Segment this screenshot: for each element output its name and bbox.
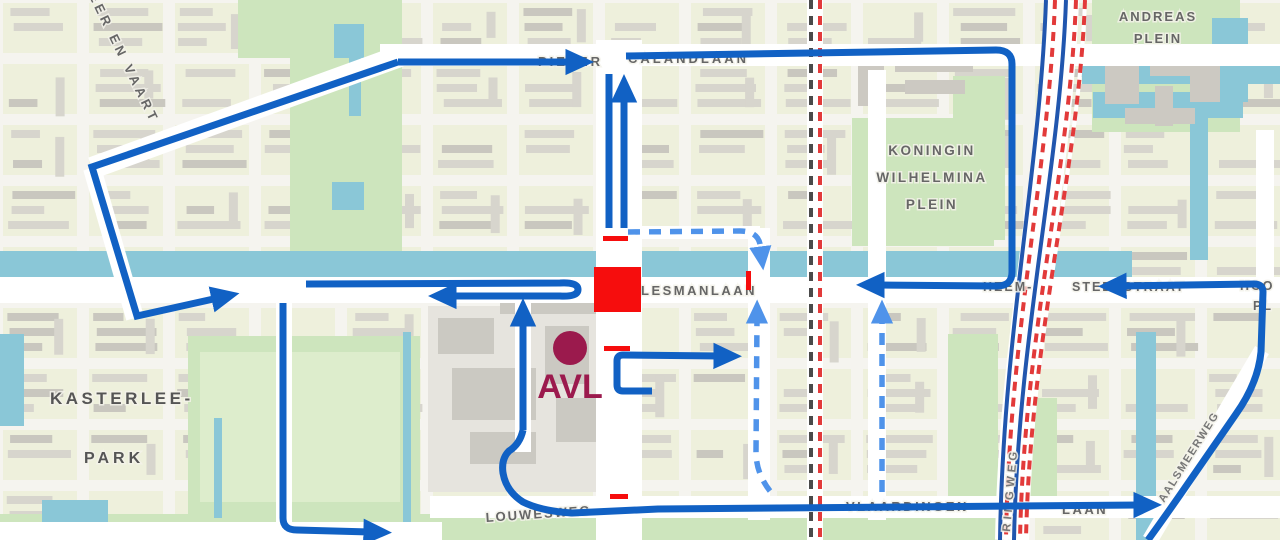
building [187, 328, 236, 336]
building [182, 160, 246, 168]
water-canal [0, 251, 1132, 277]
building [91, 435, 147, 443]
building [697, 191, 740, 199]
building [1045, 343, 1108, 351]
road [868, 70, 886, 520]
building [1126, 404, 1188, 412]
building [10, 8, 49, 16]
building [525, 23, 563, 31]
building [1209, 374, 1237, 382]
closure-square [594, 267, 641, 312]
building [8, 221, 69, 229]
label-wilhelmina: WILHELMINA [876, 170, 987, 185]
building [697, 450, 723, 458]
detour-map: PIETERCALANDLAANMEER EN VAARTKONINGINWIL… [0, 0, 1280, 540]
building [55, 137, 64, 177]
building [182, 99, 231, 107]
road [1256, 130, 1274, 290]
building [353, 328, 411, 336]
building [700, 130, 763, 138]
building [700, 343, 754, 351]
building [147, 444, 156, 475]
building [523, 8, 572, 16]
water-canal [1190, 116, 1208, 260]
building [953, 8, 1015, 16]
building [699, 145, 745, 153]
building [905, 80, 965, 94]
building [8, 450, 71, 458]
building [700, 69, 747, 77]
park-area [948, 334, 998, 514]
label-kasterlee: KASTERLEE- [50, 389, 194, 408]
building [439, 221, 492, 229]
building [12, 191, 75, 199]
building [1213, 465, 1241, 473]
building [1132, 252, 1187, 260]
building [178, 38, 207, 46]
building [574, 199, 583, 235]
building [442, 23, 471, 31]
label-andreas-plein: PLEIN [1134, 31, 1182, 46]
water-canal [332, 182, 364, 210]
building [615, 23, 656, 31]
avl-logo-text: AVL [537, 368, 602, 406]
building [1043, 328, 1083, 336]
building [698, 23, 746, 31]
building [146, 319, 155, 354]
building [572, 72, 581, 107]
building [1176, 320, 1185, 357]
building [961, 313, 1009, 321]
park-area [238, 0, 402, 58]
building [9, 99, 38, 107]
building [1132, 267, 1181, 275]
building [1088, 375, 1097, 409]
building [1215, 450, 1261, 458]
building [10, 435, 52, 443]
label-andreas: ANDREAS [1119, 9, 1197, 24]
building [1043, 526, 1081, 534]
label-lesmanlaan: LESMANLAAN [641, 283, 757, 298]
building [1128, 160, 1168, 168]
building [438, 160, 494, 168]
building [13, 160, 42, 168]
building [525, 130, 574, 138]
closure-tick-east [746, 271, 751, 290]
building [229, 192, 238, 223]
building [179, 313, 205, 321]
building [186, 145, 234, 153]
building [914, 12, 923, 41]
building [440, 191, 477, 199]
label-koningin: KONINGIN [888, 143, 976, 158]
closure-tick-avl [604, 346, 630, 351]
building [1125, 108, 1195, 124]
building [525, 221, 572, 229]
building [830, 321, 839, 362]
water-canal [214, 418, 222, 518]
building [1124, 145, 1153, 153]
park-area [200, 352, 400, 502]
building [180, 8, 213, 16]
building [491, 195, 500, 233]
building [11, 130, 40, 138]
water-canal [0, 334, 24, 426]
building [54, 319, 63, 355]
closure-tick-north [603, 236, 628, 241]
map-canvas: PIETERCALANDLAANMEER EN VAARTKONINGINWIL… [0, 0, 1280, 540]
building [529, 99, 572, 107]
building [56, 77, 65, 116]
building [1178, 200, 1187, 228]
building [1086, 441, 1095, 472]
building [437, 69, 481, 77]
road [0, 522, 442, 540]
building [7, 313, 58, 321]
building [1127, 221, 1167, 229]
building [829, 442, 838, 474]
building [526, 145, 570, 153]
building [178, 23, 226, 31]
closure-tick-louwesweg [610, 494, 628, 499]
building [442, 145, 492, 153]
water-canal [334, 24, 364, 58]
road [748, 228, 770, 520]
building [696, 328, 735, 336]
park-area [953, 76, 1005, 240]
building [489, 77, 498, 105]
building [525, 84, 574, 92]
building [187, 206, 215, 214]
water-canal [403, 332, 411, 528]
hospital-building [438, 318, 494, 354]
building [827, 133, 836, 175]
building [437, 84, 477, 92]
building [12, 206, 45, 214]
building [92, 374, 147, 382]
label-park: PARK [84, 450, 144, 467]
building [745, 78, 754, 108]
building [14, 23, 63, 31]
building [694, 374, 745, 382]
building [1213, 313, 1260, 321]
avl-logo-dot [553, 331, 587, 365]
building [655, 376, 664, 417]
building [1264, 437, 1273, 477]
building [961, 23, 1007, 31]
building [355, 313, 388, 321]
building [577, 9, 586, 42]
building [784, 389, 810, 397]
building [1044, 313, 1106, 321]
building [93, 313, 123, 321]
building [917, 318, 926, 352]
building [694, 313, 727, 321]
building [742, 13, 751, 47]
building [487, 12, 496, 38]
building [1128, 206, 1185, 214]
building [186, 69, 236, 77]
label-kw-plein: PLEIN [906, 197, 958, 212]
building [915, 382, 924, 413]
building [405, 194, 414, 228]
